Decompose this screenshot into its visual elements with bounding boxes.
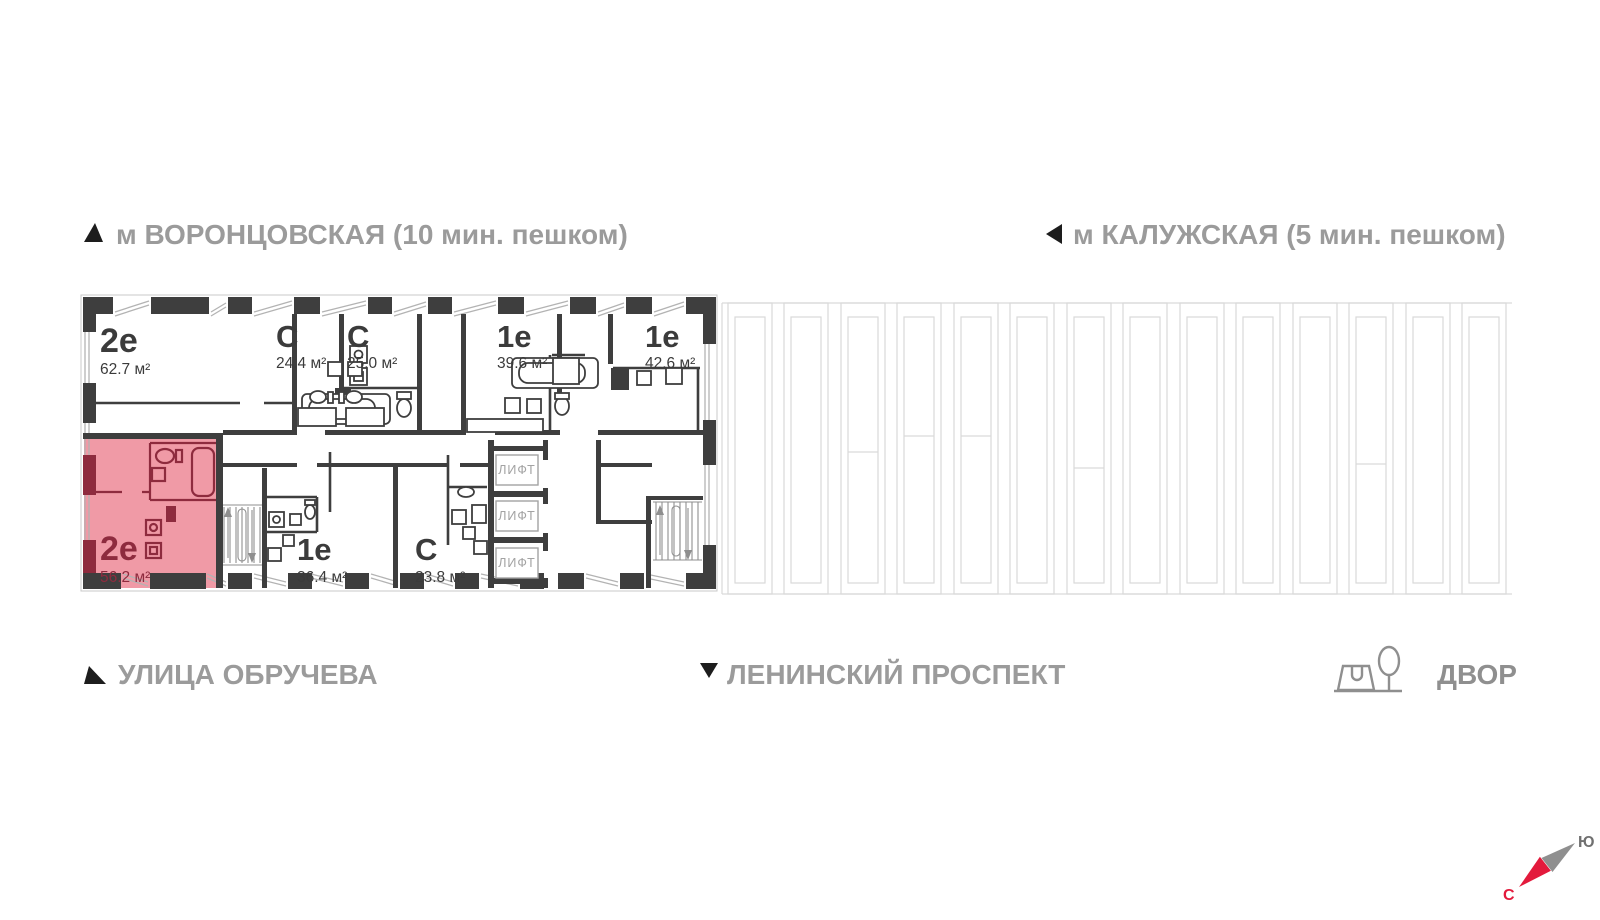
metro-label-left: м ВОРОНЦОВСКАЯ (10 мин. пешком) [84, 219, 628, 250]
apt-area-62: 62.7 м² [100, 361, 150, 378]
apt-area-39: 39.6 м² [497, 355, 547, 372]
apt-area-36: 36.4 м² [297, 569, 347, 586]
apt-type-42: 1е [645, 319, 679, 354]
lift-label-3: ЛИФТ [498, 556, 536, 570]
elevator-block: ЛИФТ ЛИФТ ЛИФТ [496, 455, 538, 578]
street-label-center: ЛЕНИНСКИЙ ПРОСПЕКТ [700, 658, 1065, 690]
floor-plan-page: м ВОРОНЦОВСКАЯ (10 мин. пешком) м КАЛУЖС… [0, 0, 1600, 920]
street-left-text: УЛИЦА ОБРУЧЕВА [118, 659, 378, 690]
apt-type-62: 2е [100, 322, 138, 360]
apt-area-25: 25.0 м² [347, 355, 397, 372]
apt-type-36: 1е [297, 532, 331, 567]
apt-type-39: 1е [497, 319, 531, 354]
compass-north-label: С [1503, 887, 1515, 904]
apt-type-24: С [276, 319, 298, 354]
metro-right-text: м КАЛУЖСКАЯ (5 мин. пешком) [1073, 219, 1506, 250]
apt-type-25: С [347, 319, 369, 354]
apt-area-24: 24.4 м² [276, 355, 326, 372]
adjacent-section-ghost [722, 303, 1512, 594]
apt-area-56: 56.2 м² [100, 569, 150, 586]
direction-left-icon [1046, 224, 1062, 244]
floor-plan-detailed: ЛИФТ ЛИФТ ЛИФТ 2е 62.7 м² С 24.4 м² С 25… [81, 295, 717, 591]
metro-label-right: м КАЛУЖСКАЯ (5 мин. пешком) [1046, 219, 1506, 250]
direction-upleft-icon [84, 666, 106, 684]
apt-area-42: 42.6 м² [645, 355, 695, 372]
apt-type-23: С [415, 532, 437, 567]
metro-left-text: м ВОРОНЦОВСКАЯ (10 мин. пешком) [116, 219, 628, 250]
compass-south-label: Ю [1578, 834, 1595, 851]
apt-area-23: 23.8 м² [415, 569, 465, 586]
yard-label: ДВОР [1334, 647, 1517, 691]
apt-type-56: 2е [100, 530, 138, 568]
direction-up-icon [84, 223, 103, 242]
playground-icon [1334, 647, 1402, 691]
yard-text: ДВОР [1437, 659, 1517, 690]
lift-label-2: ЛИФТ [498, 509, 536, 523]
lift-label-1: ЛИФТ [498, 463, 536, 477]
direction-down-icon [700, 663, 718, 678]
street-center-text: ЛЕНИНСКИЙ ПРОСПЕКТ [727, 658, 1065, 690]
street-label-left: УЛИЦА ОБРУЧЕВА [84, 659, 378, 690]
compass: Ю С [1503, 834, 1595, 904]
